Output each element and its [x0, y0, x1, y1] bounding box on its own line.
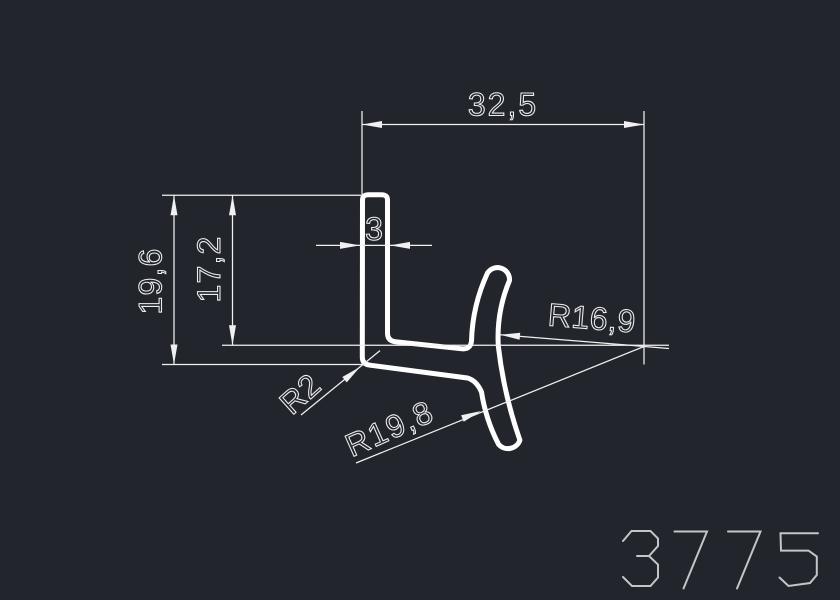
svg-text:19,6: 19,6 — [133, 247, 169, 314]
svg-text:R16,9: R16,9 — [547, 296, 638, 339]
svg-text:3: 3 — [365, 211, 383, 247]
svg-text:17,2: 17,2 — [191, 235, 227, 302]
svg-text:32,5: 32,5 — [468, 87, 538, 123]
